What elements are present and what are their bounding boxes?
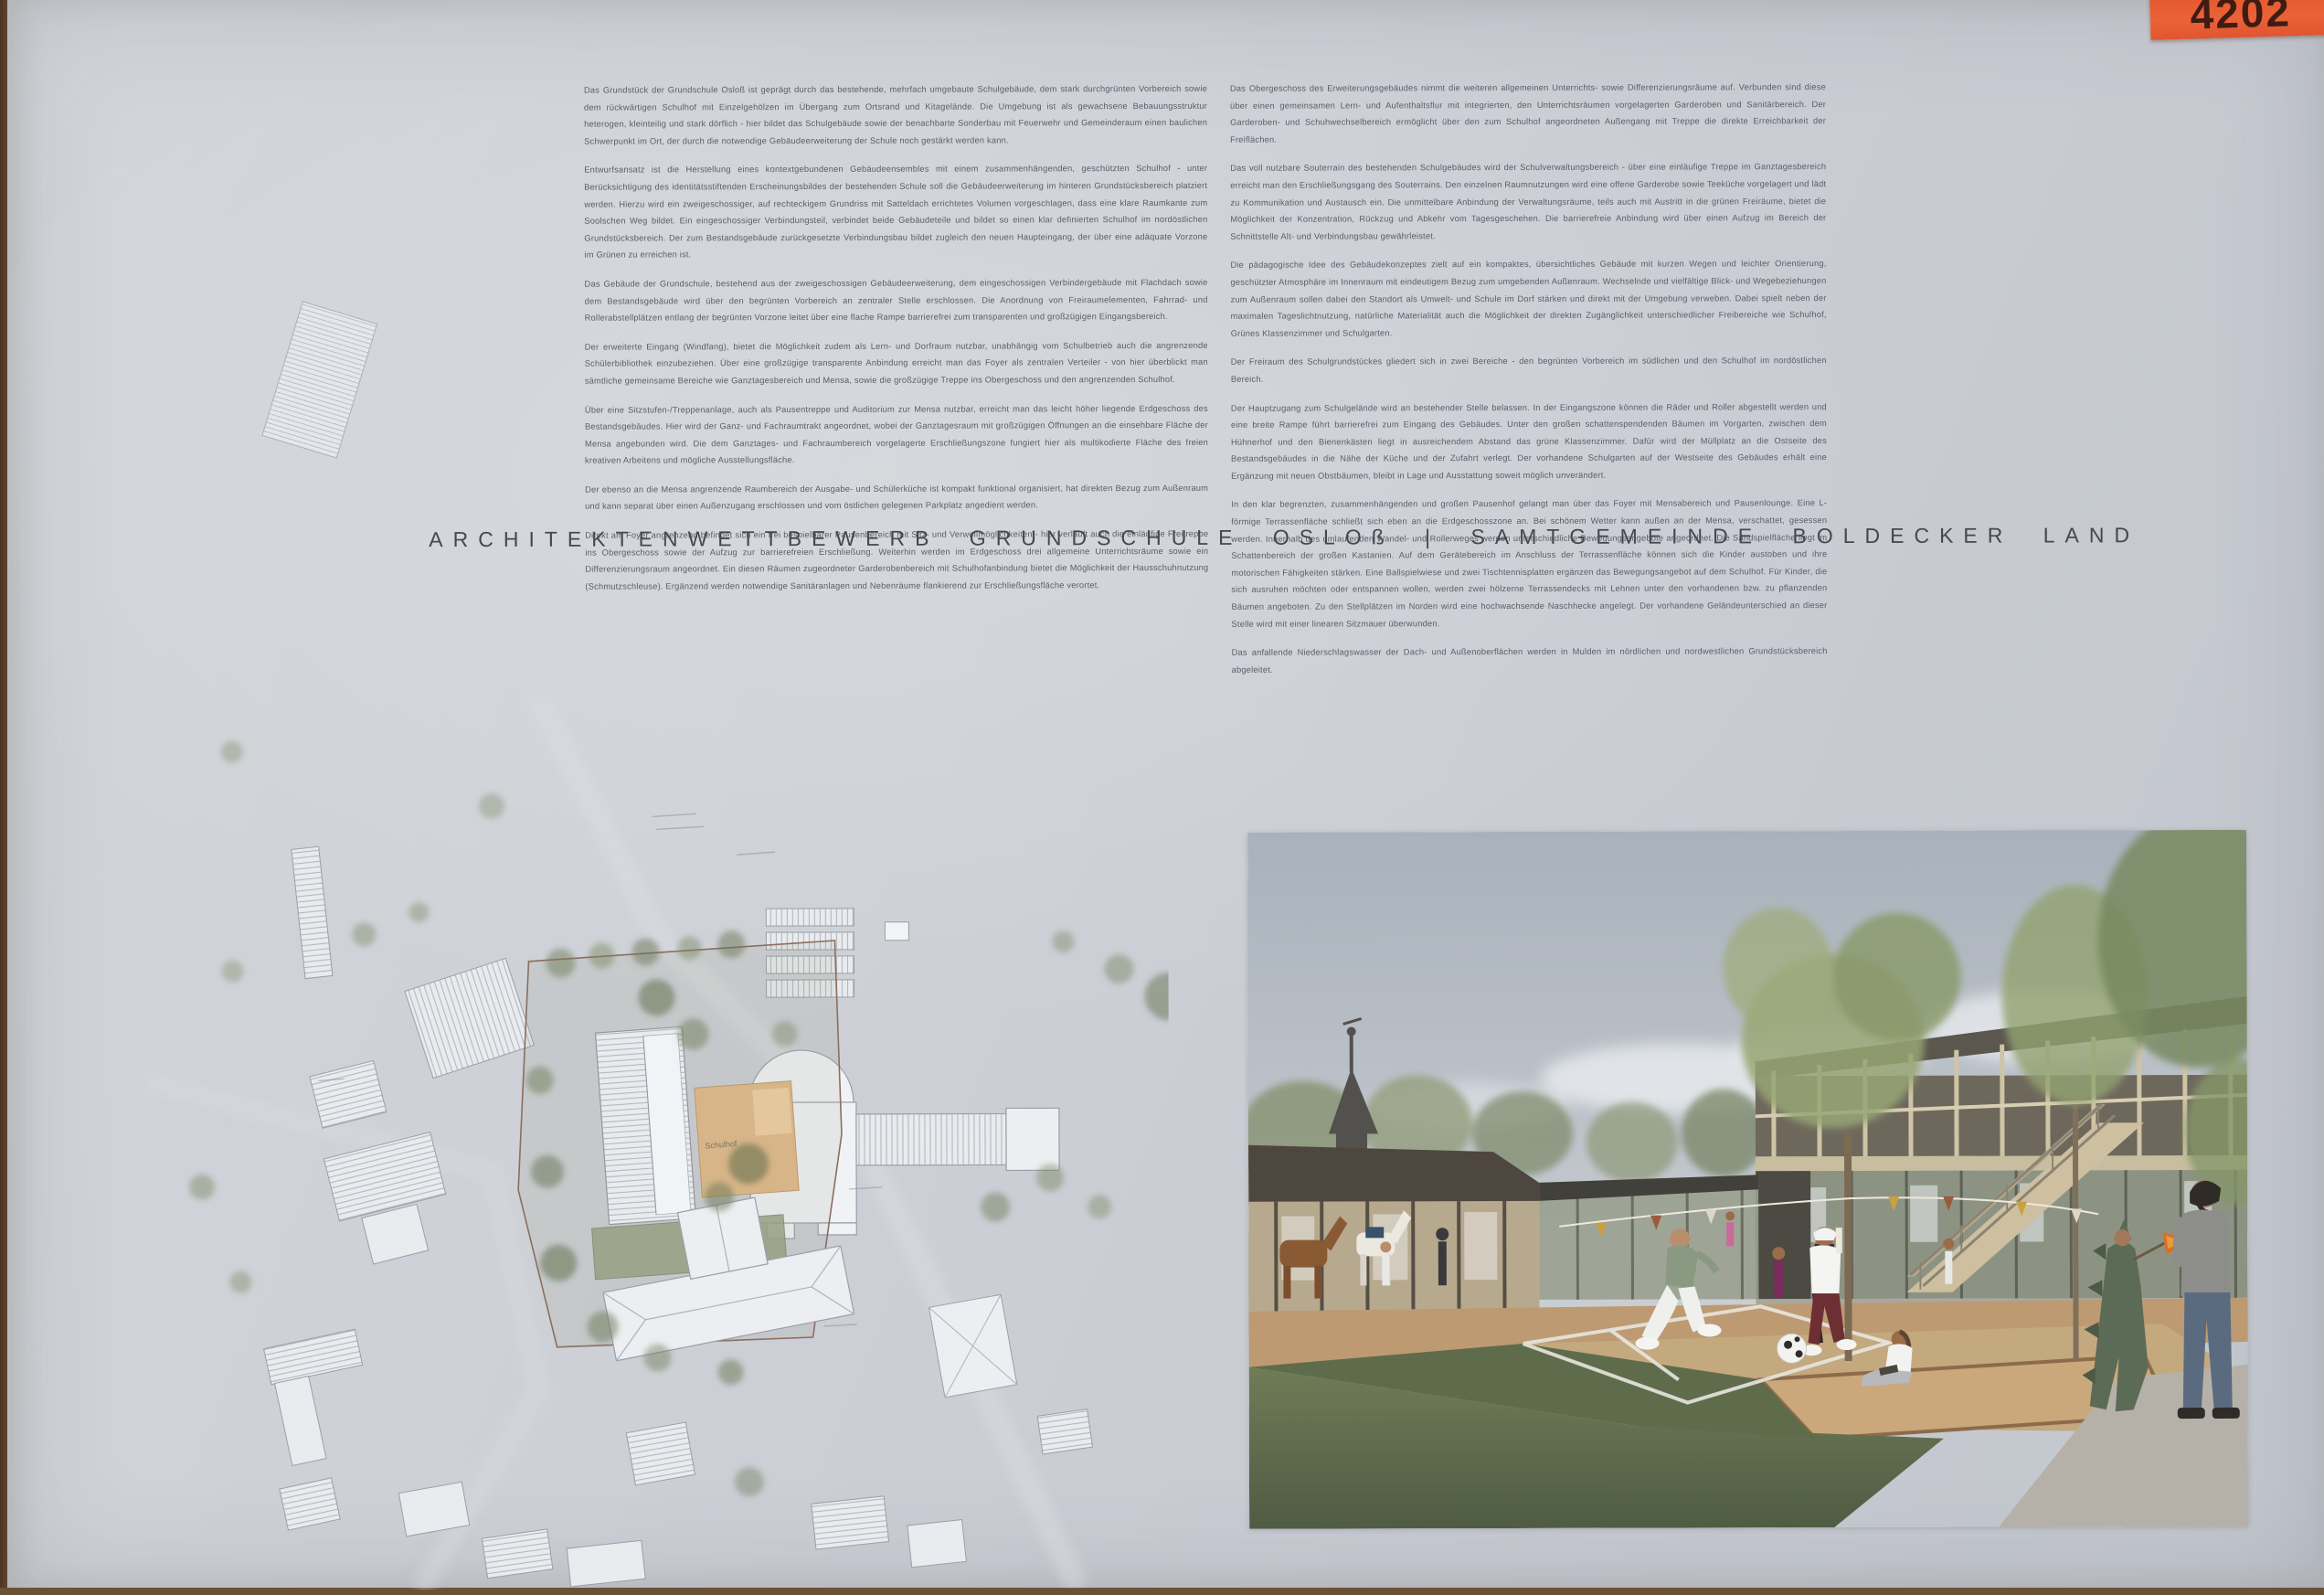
paragraph: Die pädagogische Idee des Gebäudekonzept… [1230,255,1826,342]
paragraph: Entwurfsansatz ist die Herstellung eines… [584,160,1207,263]
paragraph: Das Grundstück der Grundschule Osloß ist… [584,80,1207,150]
description-column-right: Das Obergeschoss des Erweiterungsgebäude… [1230,79,1828,690]
site-plan-drawing: Schulhof [144,695,1171,1590]
competition-entry-tag: 4202 [2149,0,2324,40]
paragraph: Der ebenso an die Mensa angrenzende Raum… [585,480,1208,516]
paragraph: Das anfallende Niederschlagswasser der D… [1232,643,1828,678]
paragraph: Der Freiraum des Schulgrundstückes glied… [1231,352,1827,388]
paragraph: Der Hauptzugang zum Schulgelände wird an… [1231,399,1827,485]
board-title: ARCHITEKTENWETTBEWERB GRUNDSCHULE OSLOß … [429,523,2165,552]
extension-building [595,1026,695,1224]
soccer-ball [1777,1334,1807,1363]
poster-sheet: 4202 Das Grundstück der Grundschule Oslo… [7,0,2324,1588]
paragraph: Der erweiterte Eingang (Windfang), biete… [585,337,1208,390]
siteplan-building-fragment [261,301,377,458]
paragraph: Das Obergeschoss des Erweiterungsgebäude… [1230,79,1826,148]
paragraph: Über eine Sitzstufen-/Treppenanlage, auc… [585,399,1208,469]
paragraph: Das Gebäude der Grundschule, bestehend a… [585,274,1208,327]
poster-content: 4202 Das Grundstück der Grundschule Oslo… [5,0,2324,1590]
paragraph: Das voll nutzbare Souterrain des bestehe… [1230,158,1826,245]
paragraph: In den klar begrenzten, zusammenhängende… [1231,495,1827,633]
site-plan: Schulhof [144,695,1171,1590]
rendering-drawing [1247,830,2248,1529]
entry-number: 4202 [2149,0,2324,40]
architectural-rendering [1247,830,2248,1529]
